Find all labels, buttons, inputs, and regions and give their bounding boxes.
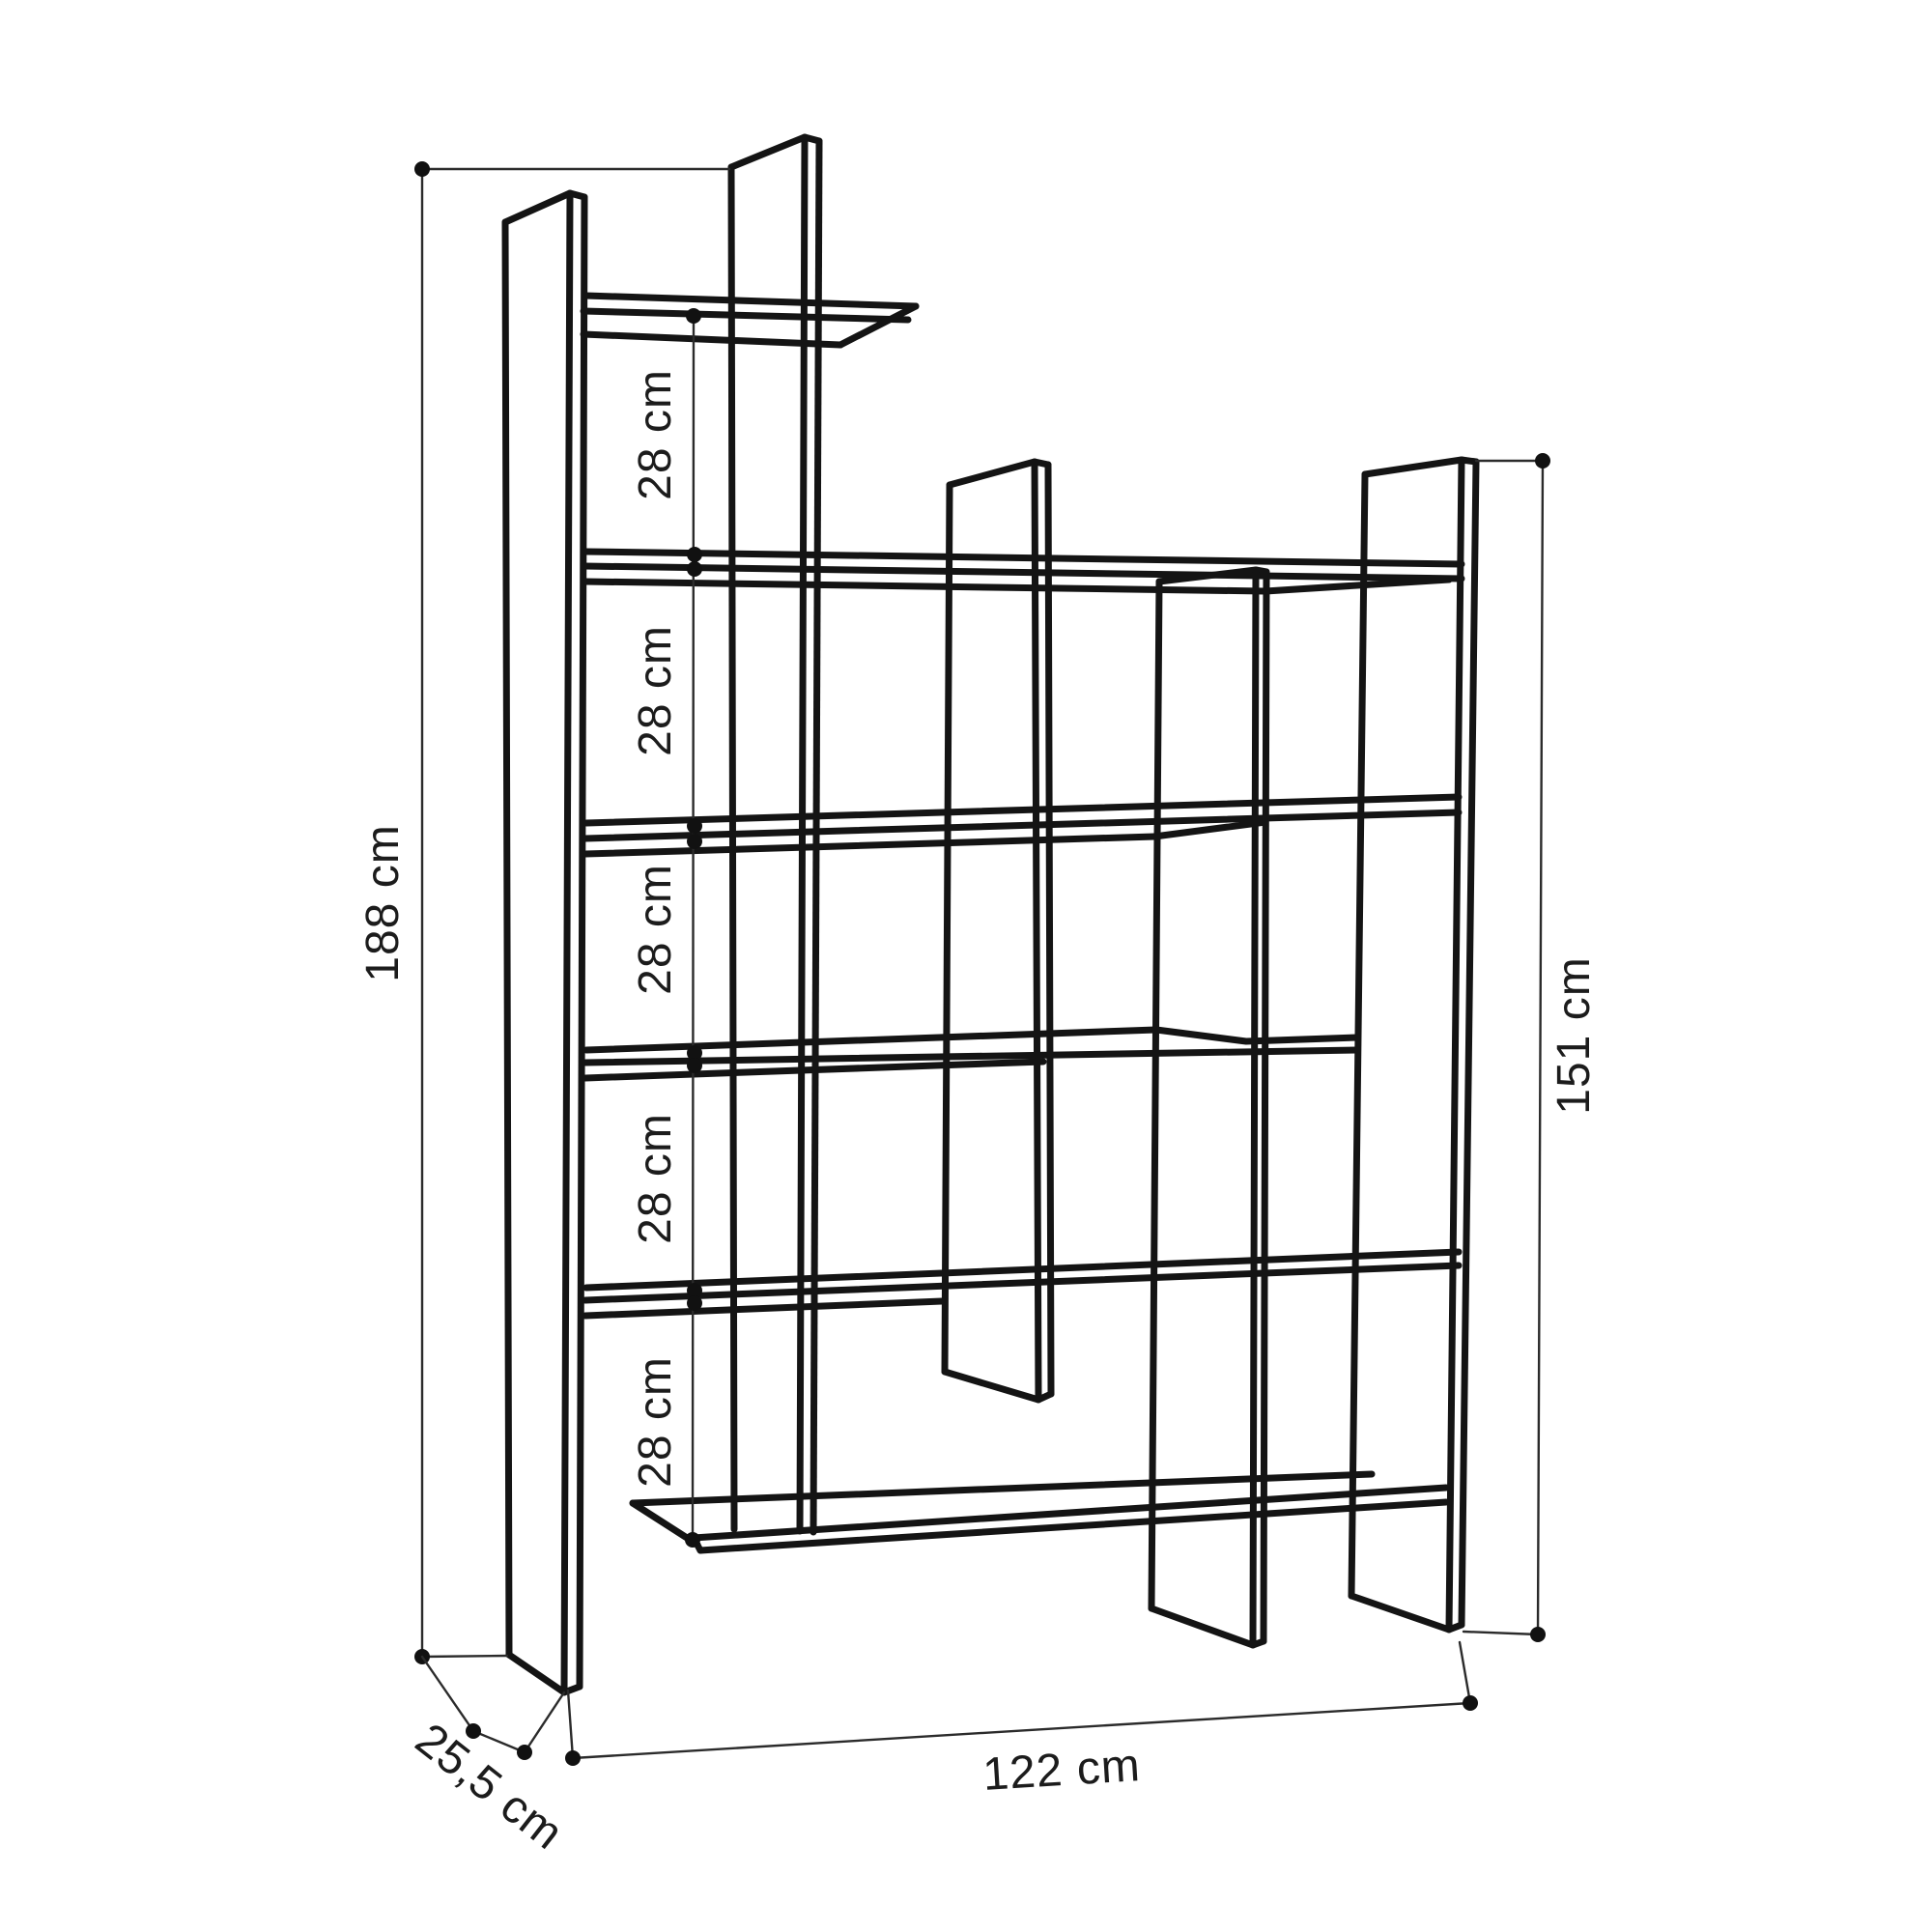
dim-label-spacing-5: 28 cm — [630, 1356, 681, 1488]
shelf-2 — [584, 552, 1462, 591]
dimension-depth: 25,5 cm — [406, 1657, 573, 1860]
dim-label-spacing-4: 28 cm — [630, 1113, 681, 1244]
dim-label-spacing-3: 28 cm — [630, 864, 681, 995]
dimension-right-height: 151 cm — [1463, 453, 1600, 1642]
left-side-panel — [505, 193, 584, 1692]
dim-label-spacing-2: 28 cm — [630, 625, 681, 756]
shelf-3 — [585, 797, 1459, 854]
shelf-5 — [585, 1252, 1459, 1316]
shelf-top — [583, 296, 916, 345]
shelf-bottom — [633, 1474, 1446, 1550]
dim-label-depth: 25,5 cm — [406, 1714, 573, 1860]
dim-label-total-height: 188 cm — [357, 824, 409, 981]
dim-label-spacing-1: 28 cm — [630, 369, 681, 500]
bookshelf-dimension-diagram: 188 cm 28 cm 28 cm 28 cm 28 cm 28 cm — [0, 0, 1932, 1932]
middle-divider-panel — [945, 462, 1051, 1400]
diagram-canvas: 188 cm 28 cm 28 cm 28 cm 28 cm 28 cm — [0, 0, 1932, 1932]
dimension-width: 122 cm — [565, 1642, 1478, 1801]
dimension-shelf-spacing: 28 cm 28 cm 28 cm 28 cm 28 cm — [630, 308, 702, 1548]
dim-label-width: 122 cm — [981, 1740, 1142, 1801]
dim-label-right-height: 151 cm — [1548, 956, 1600, 1114]
right-side-panel — [1351, 460, 1476, 1630]
